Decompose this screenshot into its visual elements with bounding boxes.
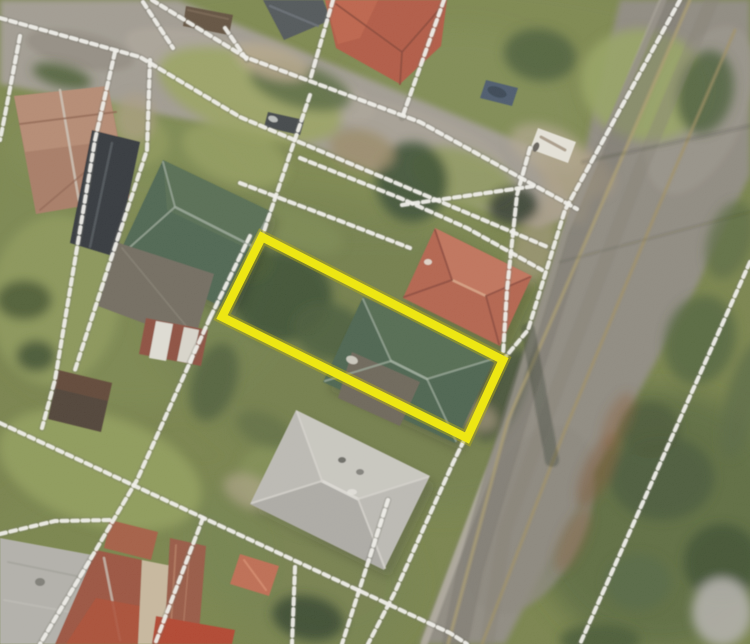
aerial-imagery (0, 0, 750, 644)
photo-grain (0, 0, 750, 644)
map-canvas[interactable] (0, 0, 750, 644)
